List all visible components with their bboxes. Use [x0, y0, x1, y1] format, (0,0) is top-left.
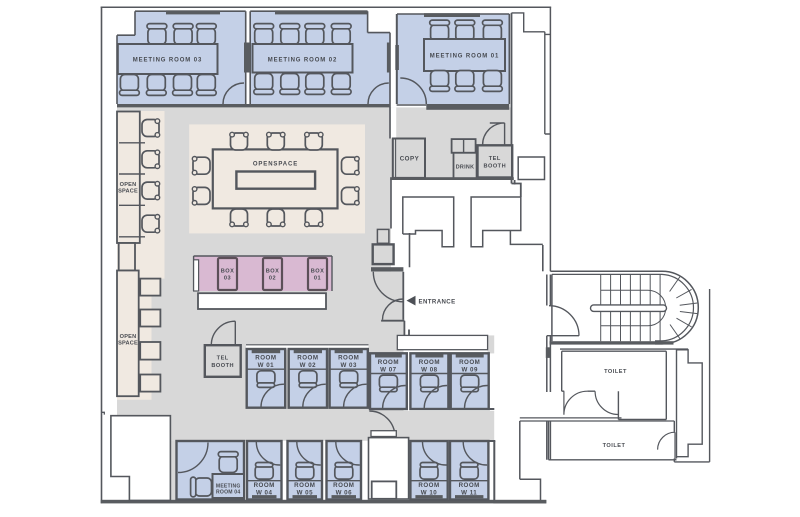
svg-text:ROOM: ROOM	[297, 355, 318, 362]
svg-text:W 10: W 10	[421, 490, 438, 497]
svg-text:TEL: TEL	[489, 156, 501, 162]
svg-text:W 08: W 08	[421, 367, 438, 374]
svg-text:TEL: TEL	[217, 356, 229, 362]
svg-text:TOILET: TOILET	[604, 369, 627, 375]
svg-text:ROOM: ROOM	[254, 482, 275, 489]
svg-text:COPY: COPY	[400, 156, 420, 163]
svg-text:03: 03	[224, 276, 231, 282]
svg-text:ROOM: ROOM	[459, 482, 480, 489]
svg-text:BOX: BOX	[311, 269, 325, 275]
svg-text:W 09: W 09	[461, 367, 478, 374]
svg-text:ROOM: ROOM	[294, 482, 315, 489]
svg-text:TOILET: TOILET	[603, 443, 626, 449]
svg-text:OPENSPACE: OPENSPACE	[253, 162, 298, 168]
svg-text:W 06: W 06	[336, 490, 353, 497]
svg-text:ROOM: ROOM	[459, 359, 480, 366]
svg-text:W 05: W 05	[297, 490, 314, 497]
svg-text:ROOM: ROOM	[419, 359, 440, 366]
svg-text:W 03: W 03	[340, 362, 357, 369]
svg-text:BOOTH: BOOTH	[211, 363, 234, 369]
svg-text:ROOM 04: ROOM 04	[216, 490, 240, 496]
svg-text:W 11: W 11	[461, 490, 477, 497]
svg-text:SPACE: SPACE	[118, 189, 138, 195]
svg-text:ROOM: ROOM	[338, 355, 359, 362]
svg-text:01: 01	[314, 276, 321, 282]
svg-text:02: 02	[269, 276, 276, 282]
svg-text:ROOM: ROOM	[333, 482, 354, 489]
svg-text:W 02: W 02	[300, 362, 317, 369]
svg-text:SPACE: SPACE	[118, 341, 138, 347]
svg-text:BOOTH: BOOTH	[483, 164, 506, 170]
svg-text:BOX: BOX	[221, 269, 235, 275]
svg-text:W 01: W 01	[258, 362, 275, 369]
svg-text:ROOM: ROOM	[255, 355, 276, 362]
svg-text:W 07: W 07	[380, 367, 397, 374]
svg-text:ROOM: ROOM	[378, 359, 399, 366]
svg-text:MEETING ROOM 01: MEETING ROOM 01	[430, 54, 500, 60]
svg-text:W 04: W 04	[256, 490, 273, 497]
svg-text:MEETING ROOM 03: MEETING ROOM 03	[133, 58, 203, 64]
svg-text:OPEN: OPEN	[120, 334, 137, 340]
svg-text:BOX: BOX	[266, 269, 280, 275]
svg-text:ENTRANCE: ENTRANCE	[419, 299, 456, 306]
svg-text:OPEN: OPEN	[120, 182, 137, 188]
svg-text:ROOM: ROOM	[418, 482, 439, 489]
svg-text:MEETING ROOM 02: MEETING ROOM 02	[268, 58, 338, 64]
svg-text:DRINK: DRINK	[456, 165, 475, 171]
